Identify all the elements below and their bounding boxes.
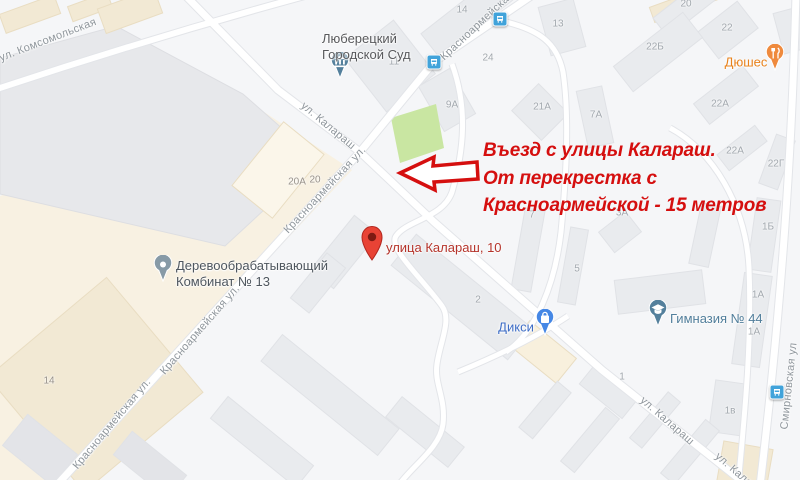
school-icon[interactable] <box>648 300 668 332</box>
annotation-text-line-2: От перекрестка с <box>483 168 657 190</box>
annotation-text-line-3: Красноармейской - 15 метров <box>483 195 766 217</box>
bus-glyph <box>773 388 782 397</box>
bus-glyph <box>430 58 439 67</box>
map-base[interactable] <box>0 0 800 480</box>
bus-glyph <box>496 15 505 24</box>
address-pin-icon[interactable] <box>360 225 384 266</box>
supermarket-icon[interactable] <box>535 309 555 341</box>
bus-stop-icon[interactable] <box>493 12 508 27</box>
courthouse-icon[interactable] <box>330 52 350 84</box>
bus-stop-icon[interactable] <box>770 385 785 400</box>
factory-icon[interactable] <box>153 255 173 287</box>
direction-arrow-icon <box>390 148 486 196</box>
map-canvas[interactable]: ул. Комсомольская Красноармейская ул. Ка… <box>0 0 800 480</box>
bus-stop-icon[interactable] <box>427 55 442 70</box>
annotation-text-line-1: Въезд с улицы Калараш. <box>483 140 716 162</box>
restaurant-icon[interactable] <box>765 44 785 76</box>
